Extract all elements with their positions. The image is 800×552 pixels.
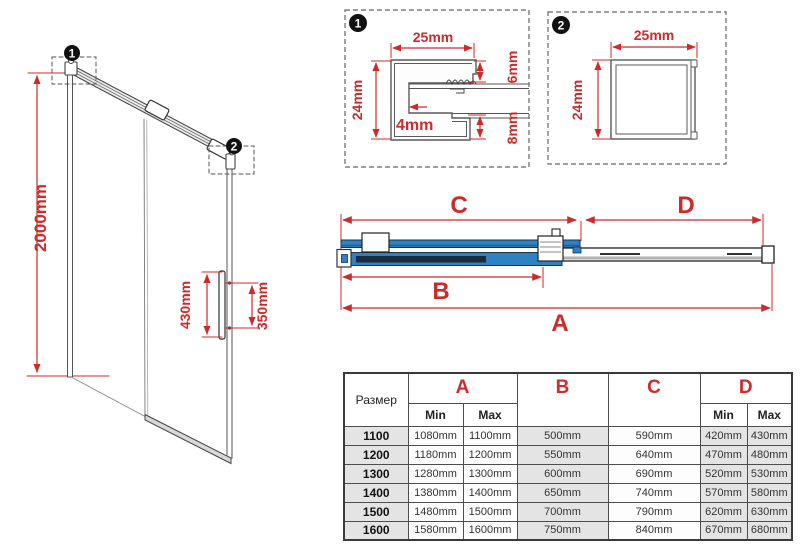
detail2-height-label: 24mm (569, 80, 585, 120)
dimension-b-label: B (432, 278, 449, 305)
a-max-cell: 1200mm (463, 445, 517, 464)
d-max-cell: 580mm (747, 483, 792, 502)
detail1-width-label: 25mm (413, 29, 453, 45)
detail1-slot-label: 4mm (396, 117, 433, 134)
a-min-cell: 1280mm (408, 464, 463, 483)
c-cell: 740mm (608, 483, 700, 502)
b-cell: 750mm (517, 521, 608, 540)
svg-text:2: 2 (558, 19, 565, 33)
table-row: 1600 1580mm 1600mm 750mm 840mm 670mm 680… (344, 521, 792, 540)
floor-line (73, 378, 146, 417)
size-column-header: Размер (344, 373, 408, 426)
a-min-cell: 1080mm (408, 426, 463, 445)
a-max-cell: 1100mm (463, 426, 517, 445)
table-row: 1400 1380mm 1400mm 650mm 740mm 570mm 580… (344, 483, 792, 502)
detail2-width-label: 25mm (634, 27, 674, 43)
door-edge-profile (227, 158, 232, 458)
b-cell: 550mm (517, 445, 608, 464)
c-cell: 840mm (608, 521, 700, 540)
column-b-header: B (517, 373, 608, 426)
table-row: 1100 1080mm 1100mm 500mm 590mm 420mm 430… (344, 426, 792, 445)
a-max-cell: 1300mm (463, 464, 517, 483)
door-perspective-view: 2000mm 430mm (27, 45, 270, 464)
table-row: 1200 1180mm 1200mm 550mm 640mm 470mm 480… (344, 445, 792, 464)
marker-2-badge: 2 (226, 138, 242, 154)
d-min-cell: 470mm (700, 445, 747, 464)
table-header-row-1: Размер A B C D (344, 373, 792, 403)
size-cell: 1600 (344, 521, 408, 540)
detail-1-profile-section: 1 25mm 24mm 4mm (345, 10, 529, 167)
a-min-cell: 1480mm (408, 502, 463, 521)
svg-text:1: 1 (69, 47, 76, 61)
column-c-header: C (608, 373, 700, 426)
a-min-header: Min (408, 403, 463, 426)
bottom-rail (145, 415, 231, 464)
d-max-cell: 680mm (747, 521, 792, 540)
door-top-bracket (226, 154, 235, 169)
d-max-cell: 530mm (747, 464, 792, 483)
handle-holes-label: 350mm (254, 282, 270, 330)
sliding-door-glass (356, 256, 486, 263)
a-min-cell: 1580mm (408, 521, 463, 540)
detail1-badge: 1 (349, 14, 367, 32)
b-cell: 650mm (517, 483, 608, 502)
size-cell: 1200 (344, 445, 408, 464)
a-max-cell: 1500mm (463, 502, 517, 521)
c-cell: 690mm (608, 464, 700, 483)
b-cell: 500mm (517, 426, 608, 445)
technical-drawing-page: 2000mm 430mm (0, 0, 800, 552)
door-handle (219, 271, 225, 339)
sliding-system-top-view: C D B A (337, 192, 774, 337)
d-min-cell: 520mm (700, 464, 747, 483)
size-cell: 1100 (344, 426, 408, 445)
b-cell: 700mm (517, 502, 608, 521)
handle-holes-dimension: 350mm (226, 282, 270, 330)
handle-length-dimension: 430mm (177, 272, 222, 337)
glass-division-line (144, 119, 145, 416)
size-cell: 1300 (344, 464, 408, 483)
c-cell: 790mm (608, 502, 700, 521)
d-max-cell: 480mm (747, 445, 792, 464)
a-min-cell: 1380mm (408, 483, 463, 502)
dimension-c-label: C (450, 192, 467, 219)
column-a-header: A (408, 373, 517, 403)
b-cell: 600mm (517, 464, 608, 483)
size-cell: 1400 (344, 483, 408, 502)
dimension-a-label: A (551, 310, 568, 337)
table-row: 1500 1480mm 1500mm 700mm 790mm 620mm 630… (344, 502, 792, 521)
fixed-panel-end-cap (762, 246, 774, 263)
svg-text:1: 1 (355, 17, 362, 31)
d-min-cell: 420mm (700, 426, 747, 445)
detail-2-profile-section: 2 25mm 24mm (548, 12, 726, 164)
dimension-a: A (343, 263, 772, 337)
roller-carriage (538, 236, 563, 261)
rail-clamp-top (362, 233, 389, 252)
detail1-bottom-arm-label: 8mm (504, 112, 520, 145)
dimension-d: D (586, 192, 763, 246)
d-min-cell: 670mm (700, 521, 747, 540)
a-min-cell: 1180mm (408, 445, 463, 464)
a-max-header: Max (463, 403, 517, 426)
detail1-top-arm-label: 6mm (504, 51, 520, 84)
table-row: 1300 1280mm 1300mm 600mm 690mm 520mm 530… (344, 464, 792, 483)
size-cell: 1500 (344, 502, 408, 521)
d-max-header: Max (747, 403, 792, 426)
d-max-cell: 630mm (747, 502, 792, 521)
c-cell: 640mm (608, 445, 700, 464)
d-max-cell: 430mm (747, 426, 792, 445)
height-dimension-label: 2000mm (31, 184, 50, 252)
dimension-d-label: D (677, 192, 694, 219)
d-min-header: Min (700, 403, 747, 426)
wall-profile-left (68, 74, 73, 377)
d-min-cell: 570mm (700, 483, 747, 502)
c-cell: 590mm (608, 426, 700, 445)
detail2-badge: 2 (552, 16, 570, 34)
svg-text:2: 2 (231, 140, 238, 154)
rail-clamp-1 (144, 100, 169, 121)
detail1-height-label: 24mm (349, 80, 365, 120)
a-max-cell: 1400mm (463, 483, 517, 502)
a-max-cell: 1600mm (463, 521, 517, 540)
dimension-b: B (343, 267, 543, 305)
square-profile-inner (616, 65, 687, 134)
d-min-cell: 620mm (700, 502, 747, 521)
column-d-header: D (700, 373, 792, 403)
marker-1-badge: 1 (64, 45, 80, 61)
handle-length-label: 430mm (177, 281, 193, 329)
carriage-knob (552, 229, 560, 236)
size-table: Размер A B C D Min Max Min Max 1100 1080… (343, 372, 793, 541)
